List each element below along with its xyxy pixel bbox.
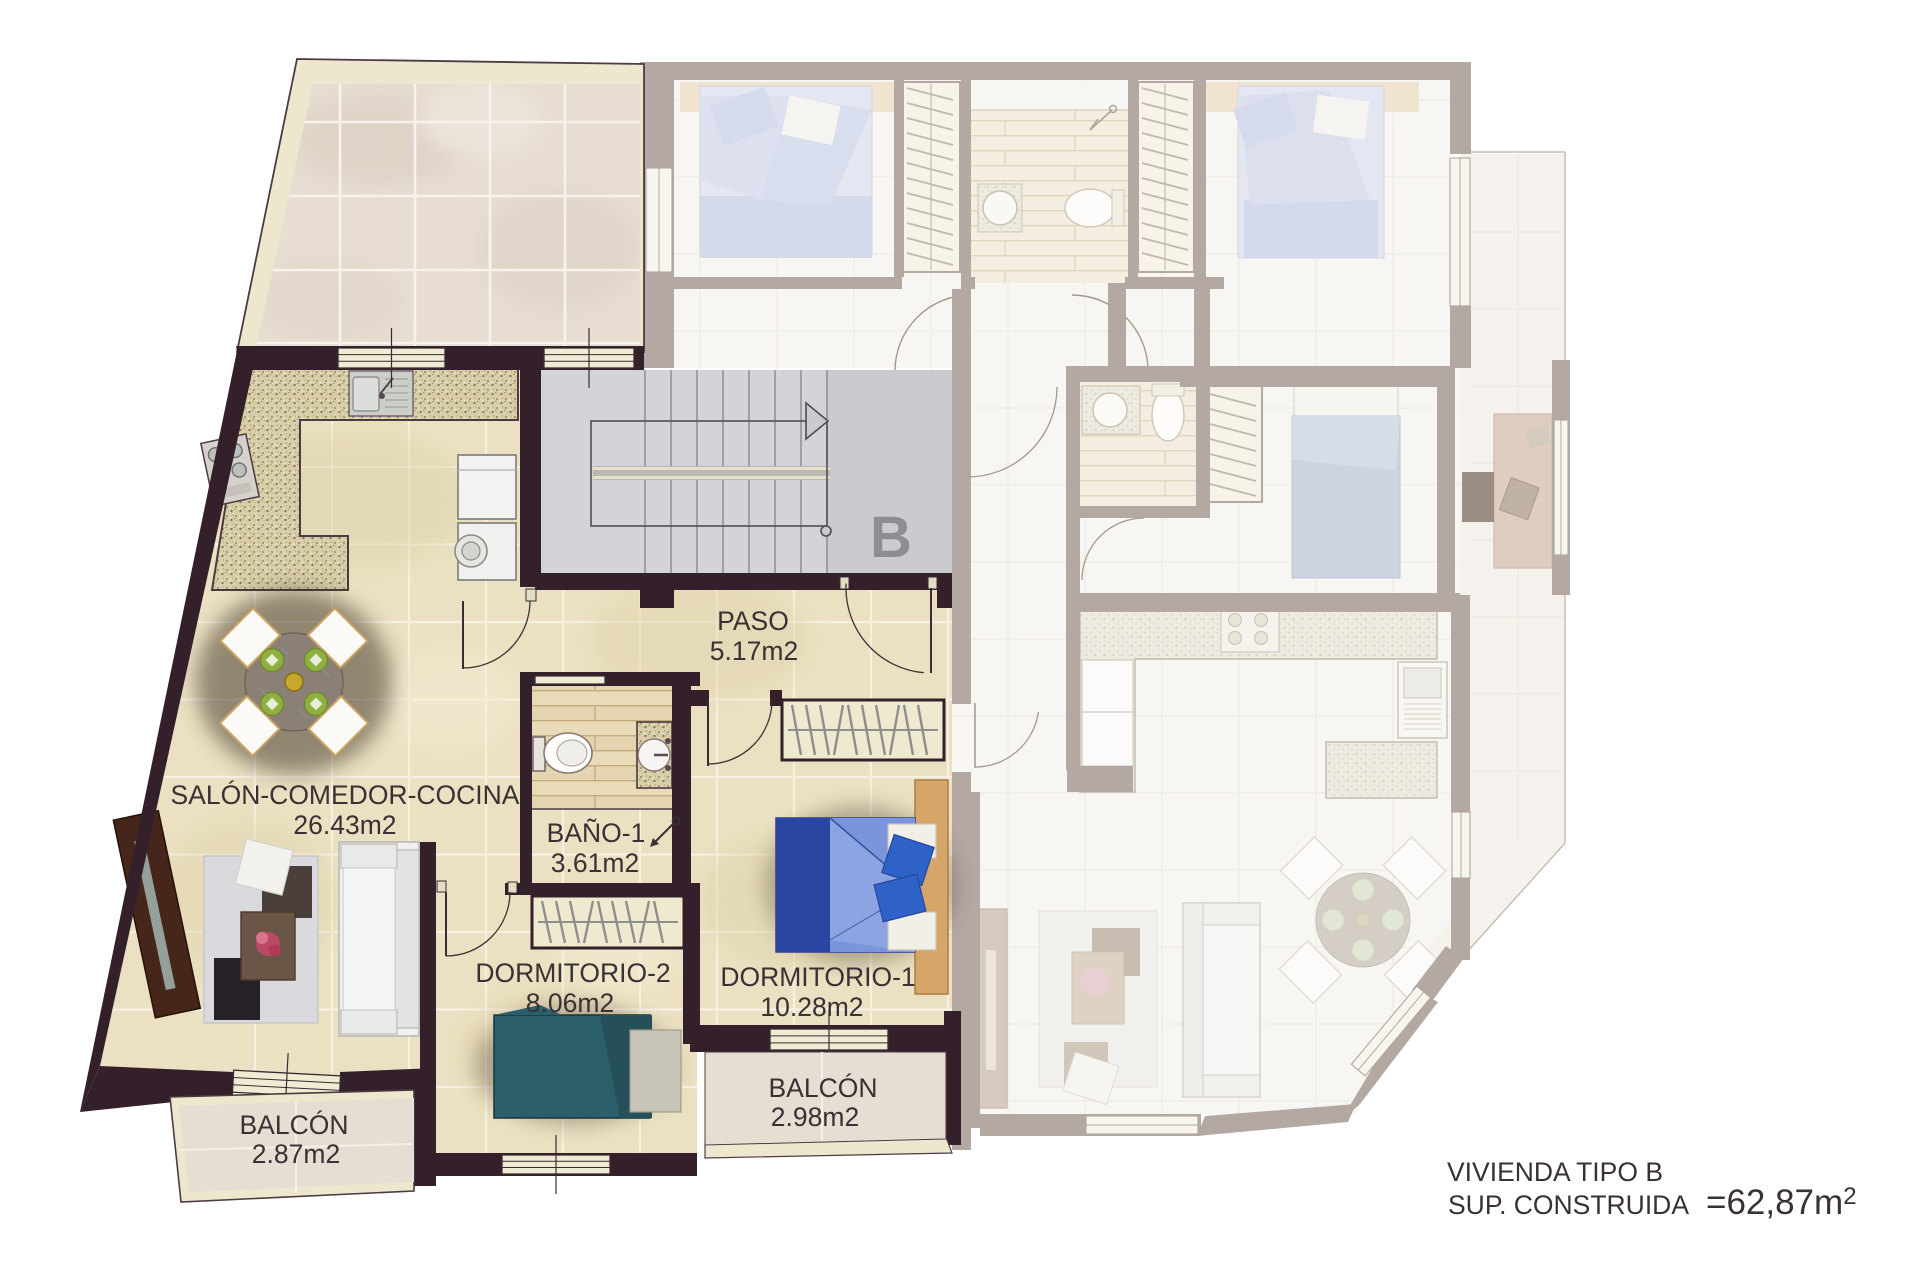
svg-text:SALÓN-COMEDOR-COCINA: SALÓN-COMEDOR-COCINA [171, 780, 520, 810]
svg-text:B: B [870, 505, 912, 570]
svg-text:2.87m2: 2.87m2 [252, 1139, 340, 1169]
svg-text:BAÑO-1: BAÑO-1 [547, 818, 646, 848]
svg-text:2.98m2: 2.98m2 [771, 1102, 859, 1132]
svg-text:8.06m2: 8.06m2 [526, 988, 614, 1018]
svg-text:BALCÓN: BALCÓN [240, 1110, 349, 1140]
svg-text:3.61m2: 3.61m2 [551, 848, 639, 878]
svg-text:10.28m2: 10.28m2 [760, 992, 863, 1022]
svg-text:=62,87m2: =62,87m2 [1706, 1183, 1857, 1222]
svg-text:VIVIENDA TIPO B: VIVIENDA TIPO B [1447, 1157, 1663, 1187]
svg-text:BALCÓN: BALCÓN [769, 1073, 878, 1103]
svg-text:PASO: PASO [717, 606, 789, 636]
svg-text:DORMITORIO-1: DORMITORIO-1 [720, 962, 915, 992]
svg-text:5.17m2: 5.17m2 [710, 636, 798, 666]
svg-text:SUP. CONSTRUIDA: SUP. CONSTRUIDA [1448, 1190, 1689, 1220]
svg-text:DORMITORIO-2: DORMITORIO-2 [475, 958, 670, 988]
svg-text:26.43m2: 26.43m2 [293, 810, 396, 840]
